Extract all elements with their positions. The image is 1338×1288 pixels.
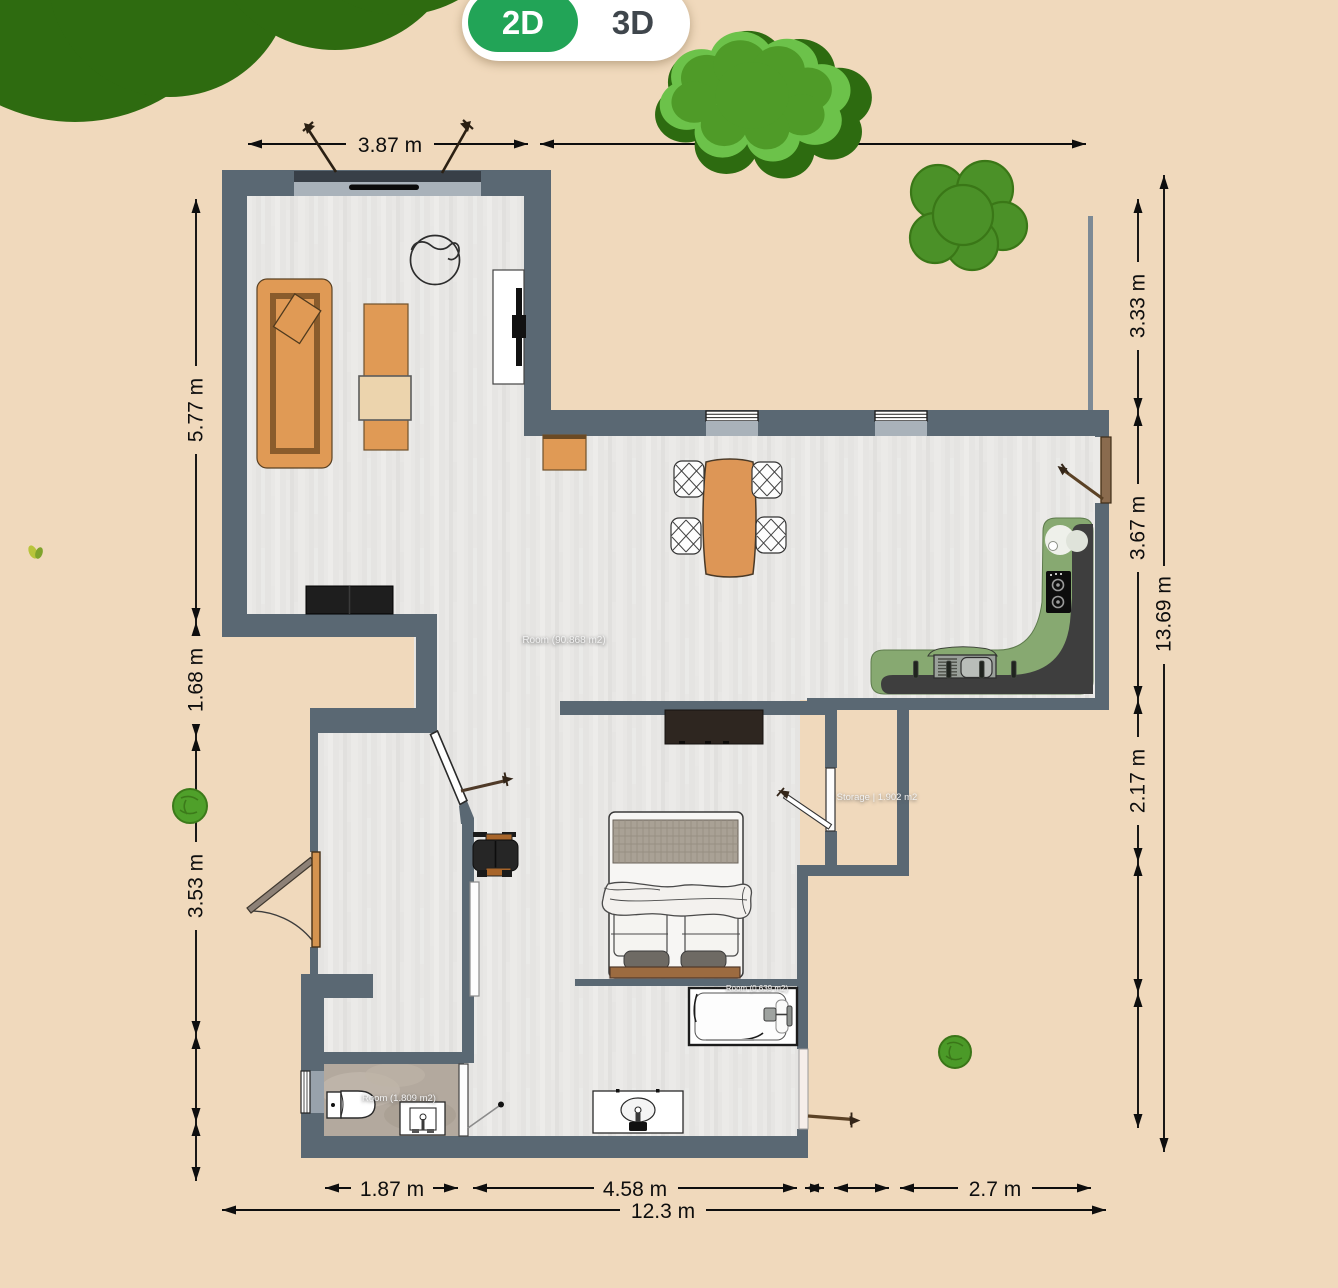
svg-text:3.33 m: 3.33 m	[1127, 274, 1150, 338]
svg-text:1.68 m: 1.68 m	[185, 648, 208, 712]
svg-text:1.87 m: 1.87 m	[360, 1178, 424, 1201]
svg-text:3.53 m: 3.53 m	[185, 854, 208, 918]
svg-text:Room (0.639 m2): Room (0.639 m2)	[726, 984, 789, 993]
svg-text:3.87 m: 3.87 m	[358, 134, 422, 157]
svg-text:13.69 m: 13.69 m	[1153, 576, 1176, 652]
svg-text:5.77 m: 5.77 m	[185, 378, 208, 442]
svg-text:3.67 m: 3.67 m	[1127, 496, 1150, 560]
svg-text:2.7 m: 2.7 m	[969, 1178, 1022, 1201]
svg-text:2.17 m: 2.17 m	[1127, 749, 1150, 813]
svg-text:3D: 3D	[612, 4, 654, 41]
svg-text:Room (90.868 m2): Room (90.868 m2)	[522, 635, 605, 646]
svg-text:12.3 m: 12.3 m	[631, 1200, 695, 1223]
svg-text:Storage | 1.902 m2: Storage | 1.902 m2	[837, 792, 918, 803]
svg-text:Room (1.809 m2): Room (1.809 m2)	[362, 1093, 436, 1104]
svg-text:2D: 2D	[502, 4, 544, 41]
